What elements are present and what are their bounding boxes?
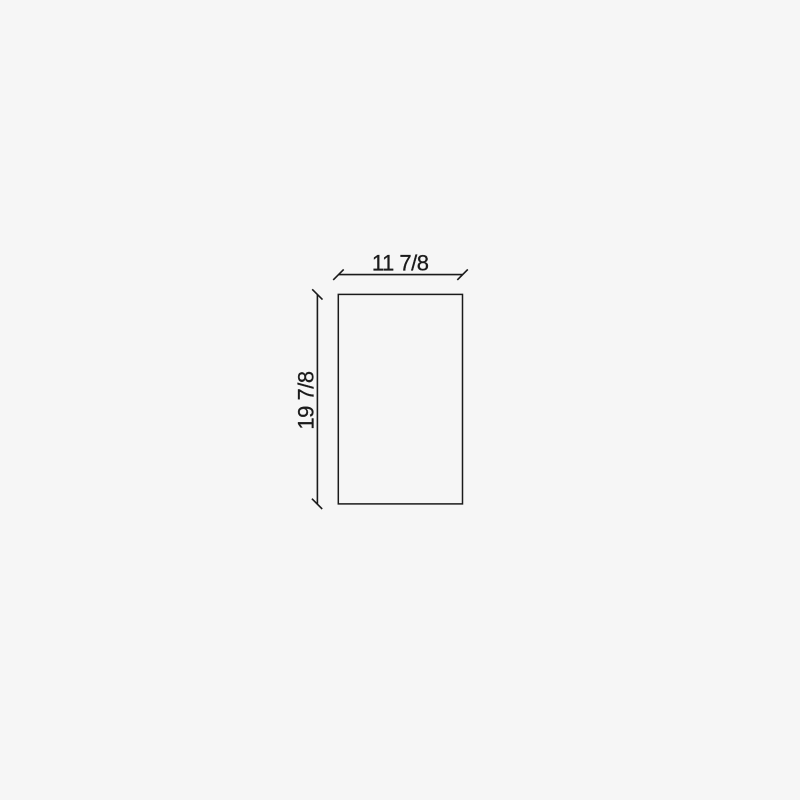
svg-text:19 7/8: 19 7/8 (293, 371, 318, 429)
svg-text:11 7/8: 11 7/8 (372, 251, 429, 276)
